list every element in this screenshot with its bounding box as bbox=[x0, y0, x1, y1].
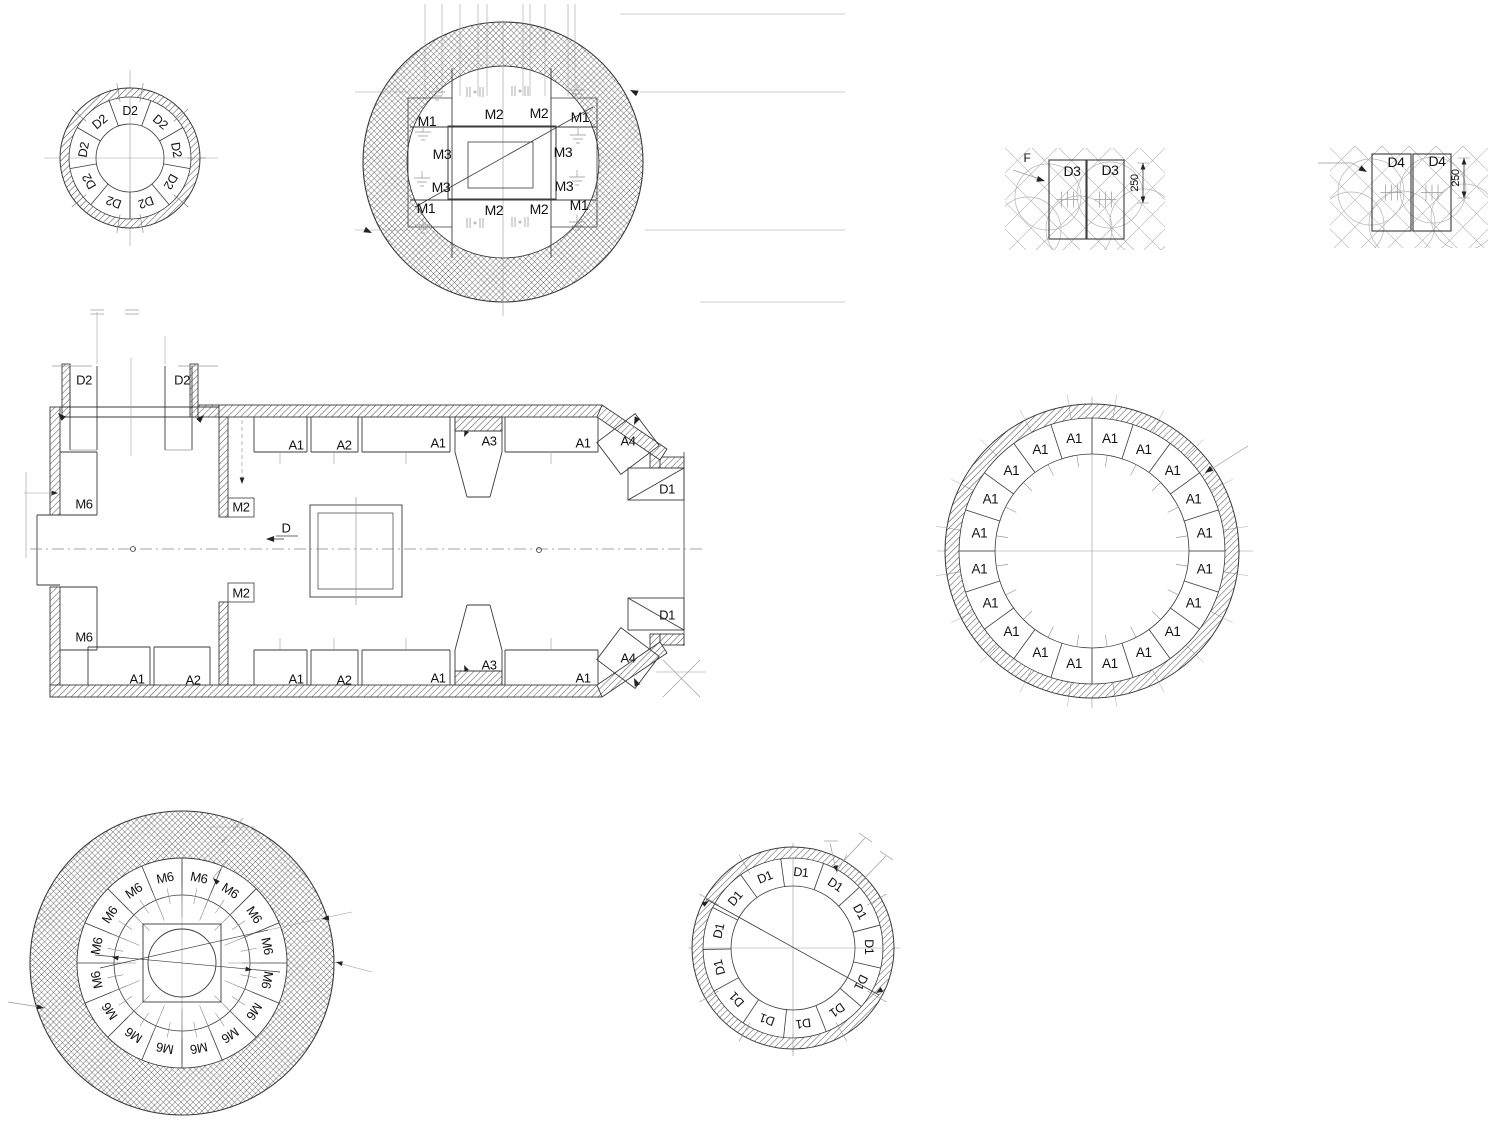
ring-label-M6: M6 bbox=[88, 936, 106, 956]
figure-pile-detail-d3: D3D3250F bbox=[895, 146, 1275, 263]
ring-label-A1: A1 bbox=[1197, 561, 1213, 576]
leader-arrow-icon bbox=[211, 876, 220, 885]
ring-label-A1: A1 bbox=[972, 526, 988, 541]
ring-label-D2: D2 bbox=[161, 171, 181, 192]
label-A1: A1 bbox=[430, 436, 445, 451]
ring-label-D2: D2 bbox=[150, 112, 171, 133]
ring-label-A1: A1 bbox=[1136, 442, 1152, 457]
label-A4: A4 bbox=[620, 434, 635, 449]
ring-label-A1: A1 bbox=[1102, 656, 1118, 671]
label-M1: M1 bbox=[571, 109, 590, 125]
figure-ring-section-m6: M6M6M6M6M6M6M6M6M6M6M6M6M6M6M6M6 bbox=[8, 811, 372, 1115]
leader-arrow-icon bbox=[1141, 197, 1146, 203]
ring-label-A1: A1 bbox=[1165, 624, 1181, 639]
label-M6: M6 bbox=[75, 630, 92, 645]
label-A1: A1 bbox=[288, 438, 303, 453]
label-D1: D1 bbox=[659, 482, 675, 497]
dimension-value: 250 bbox=[1129, 174, 1141, 191]
label-D2: D2 bbox=[76, 373, 92, 388]
ring-label-A1: A1 bbox=[1066, 656, 1082, 671]
label-D4: D4 bbox=[1428, 153, 1446, 169]
ring-label-D2: D2 bbox=[79, 171, 99, 192]
ring-label-M6: M6 bbox=[189, 869, 209, 887]
label-M2: M2 bbox=[232, 500, 249, 515]
ring-label-D1: D1 bbox=[711, 958, 729, 977]
ring-label-A1: A1 bbox=[1004, 624, 1020, 639]
ring-label-M6: M6 bbox=[99, 903, 121, 926]
label-D2: D2 bbox=[174, 373, 190, 388]
ring-label-D1: D1 bbox=[850, 902, 870, 922]
label-A1: A1 bbox=[129, 672, 144, 687]
label-M3: M3 bbox=[433, 146, 452, 162]
label-A1: A1 bbox=[575, 671, 590, 686]
label-D1: D1 bbox=[659, 608, 675, 623]
ring-label-A1: A1 bbox=[1186, 492, 1202, 507]
ring-label-M6: M6 bbox=[243, 1000, 265, 1023]
ring-label-A1: A1 bbox=[1102, 431, 1118, 446]
ring-label-A1: A1 bbox=[972, 561, 988, 576]
ring-label-D1: D1 bbox=[862, 939, 876, 955]
figure-ring-section-m: M1M2M2M1M3M3M3M3M1M2M2M1 bbox=[355, 4, 845, 316]
label-M3: M3 bbox=[432, 179, 451, 195]
ring-label-D2: D2 bbox=[122, 104, 138, 118]
leader-arrow-icon bbox=[363, 227, 373, 236]
ring-label-D1: D1 bbox=[757, 1010, 776, 1028]
leader-arrow-icon bbox=[1358, 165, 1368, 174]
ring-label-A1: A1 bbox=[1197, 526, 1213, 541]
leader-arrow-icon bbox=[631, 677, 640, 687]
figure-ring-section-a1: A1A1A1A1A1A1A1A1A1A1A1A1A1A1A1A1A1A1A1A1 bbox=[936, 395, 1253, 708]
ring-label-D1: D1 bbox=[755, 868, 775, 887]
label-M2: M2 bbox=[485, 202, 504, 218]
label-M2: M2 bbox=[530, 105, 549, 121]
ring-label-D1: D1 bbox=[794, 1015, 811, 1031]
leader-arrow-icon bbox=[1141, 163, 1146, 169]
ring-label-D1: D1 bbox=[851, 972, 871, 992]
ring-label-A1: A1 bbox=[1032, 645, 1048, 660]
ring-label-A1: A1 bbox=[1004, 463, 1020, 478]
ring-label-A1: A1 bbox=[1066, 431, 1082, 446]
ring-label-D1: D1 bbox=[793, 865, 810, 881]
leader-arrow-icon bbox=[266, 536, 274, 542]
figure-ring-section-d2: D2D2D2D2D2D2D2D2D2 bbox=[44, 70, 218, 246]
ring-label-M6: M6 bbox=[243, 903, 265, 926]
ring-label-M6: M6 bbox=[258, 970, 276, 990]
leader-arrow-icon bbox=[112, 955, 119, 961]
ring-label-A1: A1 bbox=[1136, 645, 1152, 660]
label-M2: M2 bbox=[232, 586, 249, 601]
label-D4: D4 bbox=[1387, 154, 1405, 170]
label-A1: A1 bbox=[430, 671, 445, 686]
ring-label-D2: D2 bbox=[89, 111, 110, 132]
leader-arrow-icon bbox=[240, 478, 245, 484]
label-D3: D3 bbox=[1063, 163, 1081, 179]
figure-plan-section: DD2D2M6M6M2M2A1A2A1A3A1A4D1D1A1A2A1A2A1A… bbox=[24, 310, 706, 697]
tunnel-segment-sections-drawing: D2D2D2D2D2D2D2D2D2M1M2M2M1M3M3M3M3M1M2M2… bbox=[0, 0, 1500, 1126]
ring-label-M6: M6 bbox=[122, 1024, 145, 1046]
label-A3: A3 bbox=[481, 434, 496, 449]
leader-arrow-icon bbox=[1462, 158, 1467, 164]
dimension-value: 250 bbox=[1450, 169, 1462, 186]
label-M1: M1 bbox=[417, 200, 436, 216]
ring-label-D1: D1 bbox=[710, 922, 727, 940]
label-A1: A1 bbox=[575, 436, 590, 451]
label-M6: M6 bbox=[75, 497, 92, 512]
ring-label-A1: A1 bbox=[1165, 463, 1181, 478]
ring-label-D2: D2 bbox=[76, 141, 93, 159]
ring-label-M6: M6 bbox=[88, 970, 106, 990]
cad-drawing-sheet: D2D2D2D2D2D2D2D2D2M1M2M2M1M3M3M3M3M1M2M2… bbox=[0, 0, 1500, 1126]
ring-label-D1: D1 bbox=[726, 989, 747, 1010]
ring-label-D1: D1 bbox=[827, 1000, 848, 1020]
ring-label-M6: M6 bbox=[122, 880, 145, 902]
label-M2: M2 bbox=[530, 201, 549, 217]
label-A4: A4 bbox=[620, 651, 635, 666]
figure-pile-detail-d4: D4D4250 bbox=[1220, 146, 1500, 258]
leader-arrow-icon bbox=[629, 87, 639, 96]
label-M1: M1 bbox=[570, 197, 589, 213]
ring-label-A1: A1 bbox=[1186, 595, 1202, 610]
label-A1: A1 bbox=[288, 672, 303, 687]
label-A2: A2 bbox=[336, 673, 351, 688]
ring-label-M6: M6 bbox=[219, 880, 242, 902]
ring-label-A1: A1 bbox=[983, 595, 999, 610]
ring-label-M6: M6 bbox=[258, 936, 276, 956]
ring-label-D1: D1 bbox=[825, 875, 846, 895]
label-M2: M2 bbox=[485, 106, 504, 122]
ring-label-D2: D2 bbox=[136, 193, 155, 212]
ring-label-M6: M6 bbox=[189, 1039, 209, 1057]
ring-label-D2: D2 bbox=[104, 193, 123, 212]
label-D3: D3 bbox=[1101, 162, 1119, 178]
ring-label-A1: A1 bbox=[983, 492, 999, 507]
label-A2: A2 bbox=[185, 673, 200, 688]
ring-label-M6: M6 bbox=[219, 1024, 242, 1046]
label-A3: A3 bbox=[481, 658, 496, 673]
ring-label-M6: M6 bbox=[155, 869, 175, 887]
leader-arrow-icon bbox=[1036, 176, 1045, 184]
figure-ring-section-d1: D1D1D1D1D1D1D1D1D1D1D1D1D1 bbox=[688, 833, 900, 1056]
label-M3: M3 bbox=[555, 178, 574, 194]
ring-label-A1: A1 bbox=[1032, 442, 1048, 457]
detail-marker-f: F bbox=[1024, 151, 1031, 165]
ring-label-M6: M6 bbox=[155, 1039, 175, 1057]
label-M3: M3 bbox=[554, 144, 573, 160]
ring-label-D1: D1 bbox=[725, 888, 746, 909]
section-marker-d: D bbox=[282, 521, 291, 536]
ring-label-D2: D2 bbox=[168, 141, 185, 159]
ring-label-M6: M6 bbox=[99, 1000, 121, 1023]
label-A2: A2 bbox=[336, 438, 351, 453]
label-M1: M1 bbox=[418, 113, 437, 129]
